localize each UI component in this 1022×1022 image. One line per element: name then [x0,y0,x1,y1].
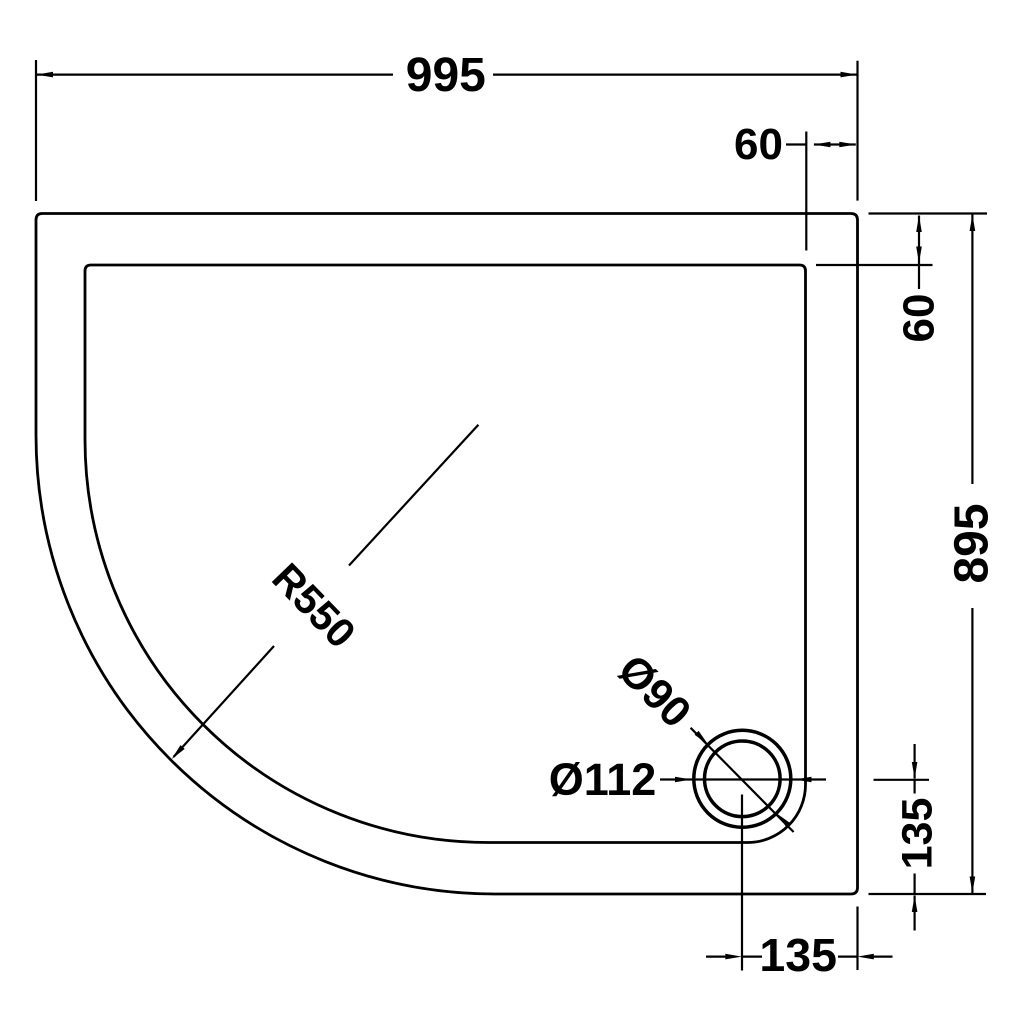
svg-text:60: 60 [734,120,783,169]
svg-text:135: 135 [893,798,941,870]
svg-text:135: 135 [759,929,837,981]
svg-text:Ø112: Ø112 [549,754,657,805]
svg-text:895: 895 [946,503,999,583]
svg-text:995: 995 [406,49,486,102]
svg-text:60: 60 [895,294,944,343]
